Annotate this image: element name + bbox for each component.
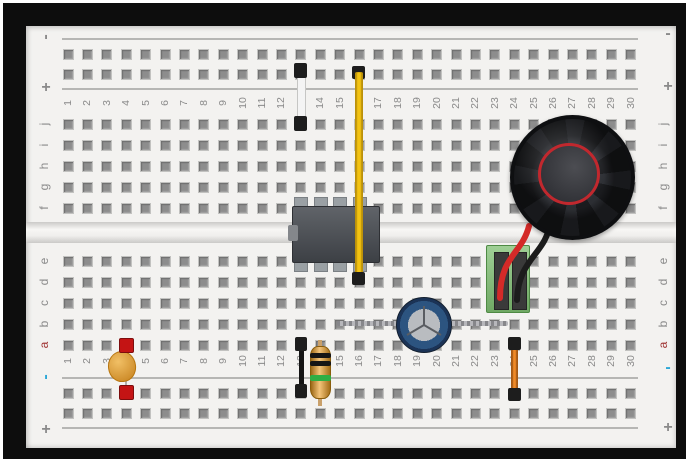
- capacitor-lead-right[interactable]: [449, 321, 508, 326]
- hole: [606, 277, 617, 288]
- hole: [276, 277, 287, 288]
- ic-chip-8pin-dip[interactable]: [292, 206, 380, 263]
- hole: [82, 119, 93, 130]
- hole: [392, 119, 403, 130]
- hole: [373, 119, 384, 130]
- hole: [63, 340, 74, 351]
- hole: [548, 277, 559, 288]
- column-number-bottom: 10: [237, 355, 249, 367]
- hole: [451, 203, 462, 214]
- black-jumper-bottom-end[interactable]: [295, 384, 307, 398]
- hole: [276, 161, 287, 172]
- hole: [354, 340, 365, 351]
- hole: [276, 340, 287, 351]
- column-number-top: 30: [625, 97, 637, 109]
- hole: [489, 408, 500, 419]
- row-letter-right: g: [656, 184, 670, 191]
- hole: [334, 277, 345, 288]
- hole: [295, 408, 306, 419]
- hole: [198, 298, 209, 309]
- hole: [160, 319, 171, 330]
- hole: [334, 298, 345, 309]
- hole: [257, 161, 268, 172]
- hole: [218, 277, 229, 288]
- hole: [567, 298, 578, 309]
- hole: [470, 182, 481, 193]
- column-number-bottom: 9: [217, 358, 229, 364]
- hole: [237, 298, 248, 309]
- hole: [489, 182, 500, 193]
- row-letter-left: h: [37, 163, 51, 170]
- hole: [101, 49, 112, 60]
- hole: [334, 161, 345, 172]
- hole: [82, 182, 93, 193]
- hole: [101, 182, 112, 193]
- hole: [160, 298, 171, 309]
- electrolytic-capacitor[interactable]: [396, 297, 452, 353]
- hole: [179, 203, 190, 214]
- hole: [101, 408, 112, 419]
- hole: [606, 408, 617, 419]
- hole: [160, 140, 171, 151]
- hole: [606, 256, 617, 267]
- column-number-bottom: 16: [353, 355, 365, 367]
- column-number-bottom: 26: [547, 355, 559, 367]
- hole: [431, 277, 442, 288]
- hole: [276, 203, 287, 214]
- hole: [198, 119, 209, 130]
- hole: [179, 49, 190, 60]
- hole: [431, 256, 442, 267]
- hole: [412, 140, 423, 151]
- bottom-rail-line-minus: [62, 377, 638, 379]
- hole: [606, 49, 617, 60]
- column-number-bottom: 12: [275, 355, 287, 367]
- hole: [121, 140, 132, 151]
- row-letter-left: b: [37, 321, 51, 328]
- hole: [586, 340, 597, 351]
- hole: [237, 319, 248, 330]
- hole: [82, 388, 93, 399]
- column-number-bottom: 15: [334, 355, 346, 367]
- hole: [101, 319, 112, 330]
- hole: [567, 408, 578, 419]
- hole: [470, 161, 481, 172]
- column-number-top: 28: [586, 97, 598, 109]
- hole: [160, 49, 171, 60]
- hole: [567, 69, 578, 80]
- hole: [257, 388, 268, 399]
- hole: [63, 203, 74, 214]
- hole: [198, 161, 209, 172]
- hole: [121, 119, 132, 130]
- hole: [160, 340, 171, 351]
- hole: [121, 319, 132, 330]
- breadboard: 1122334455667788991010111112121313141415…: [26, 26, 676, 448]
- hole: [392, 203, 403, 214]
- hole: [179, 319, 190, 330]
- hole: [257, 408, 268, 419]
- hole: [567, 49, 578, 60]
- hole: [121, 161, 132, 172]
- hole: [451, 161, 462, 172]
- hole: [412, 388, 423, 399]
- hole: [140, 203, 151, 214]
- hole: [101, 277, 112, 288]
- hole: [121, 182, 132, 193]
- hole: [140, 319, 151, 330]
- hole: [82, 340, 93, 351]
- hole: [451, 408, 462, 419]
- hole: [140, 408, 151, 419]
- hole: [625, 49, 636, 60]
- hole: [295, 161, 306, 172]
- yellow-wire-bottom-end[interactable]: [352, 272, 365, 285]
- hole: [412, 69, 423, 80]
- row-letter-left: g: [37, 184, 51, 191]
- column-number-top: 7: [178, 100, 190, 106]
- hole: [237, 340, 248, 351]
- hole: [392, 49, 403, 60]
- column-number-bottom: 21: [450, 355, 462, 367]
- hole: [625, 277, 636, 288]
- white-jumper-bottom-end[interactable]: [294, 116, 307, 131]
- hole: [586, 256, 597, 267]
- hole: [140, 140, 151, 151]
- hole: [160, 256, 171, 267]
- hole: [373, 298, 384, 309]
- capacitor-lead-left[interactable]: [337, 321, 397, 326]
- hole: [548, 256, 559, 267]
- hole: [412, 408, 423, 419]
- hole: [586, 408, 597, 419]
- hole: [625, 298, 636, 309]
- hole: [140, 298, 151, 309]
- hole: [237, 49, 248, 60]
- hole: [140, 277, 151, 288]
- hole: [625, 256, 636, 267]
- hole: [567, 340, 578, 351]
- hole: [354, 298, 365, 309]
- hole: [63, 49, 74, 60]
- hole: [334, 140, 345, 151]
- hole: [121, 298, 132, 309]
- hole: [276, 69, 287, 80]
- hole: [179, 69, 190, 80]
- hole: [625, 69, 636, 80]
- hole: [489, 69, 500, 80]
- hole: [121, 277, 132, 288]
- hole: [586, 277, 597, 288]
- column-number-bottom: 5: [140, 358, 152, 364]
- hole: [140, 388, 151, 399]
- hole: [63, 408, 74, 419]
- hole: [101, 256, 112, 267]
- hole: [198, 340, 209, 351]
- hole: [63, 277, 74, 288]
- hole: [140, 340, 151, 351]
- column-number-top: 19: [411, 97, 423, 109]
- speaker-cone: [538, 143, 600, 205]
- column-number-bottom: 18: [392, 355, 404, 367]
- column-number-bottom: 25: [528, 355, 540, 367]
- hole: [237, 277, 248, 288]
- hole: [276, 319, 287, 330]
- hole: [295, 182, 306, 193]
- hole: [431, 161, 442, 172]
- row-letter-left: e: [37, 258, 51, 265]
- rail-marker-bottom-right-plus: +: [663, 419, 672, 437]
- hole: [198, 203, 209, 214]
- orange-jumper-top-end[interactable]: [508, 337, 521, 350]
- row-letter-left: a: [37, 342, 51, 349]
- column-number-bottom: 29: [605, 355, 617, 367]
- hole: [121, 203, 132, 214]
- hole: [295, 319, 306, 330]
- hole: [548, 298, 559, 309]
- column-number-top: 20: [431, 97, 443, 109]
- hole: [315, 69, 326, 80]
- hole: [586, 319, 597, 330]
- hole: [257, 203, 268, 214]
- hole: [160, 388, 171, 399]
- orange-jumper-bottom-end[interactable]: [508, 388, 521, 401]
- hole: [160, 203, 171, 214]
- column-number-top: 3: [101, 100, 113, 106]
- hole: [315, 119, 326, 130]
- hole: [431, 203, 442, 214]
- hole: [315, 408, 326, 419]
- column-number-bottom: 2: [81, 358, 93, 364]
- hole: [509, 319, 520, 330]
- hole: [470, 49, 481, 60]
- hole: [218, 256, 229, 267]
- rail-marker-bottom-left-minus: -: [37, 374, 55, 379]
- hole: [218, 119, 229, 130]
- hole: [431, 140, 442, 151]
- hole: [334, 408, 345, 419]
- speaker[interactable]: [510, 115, 635, 240]
- hole: [354, 49, 365, 60]
- hole: [451, 69, 462, 80]
- hole: [315, 319, 326, 330]
- hole: [82, 408, 93, 419]
- hole: [606, 319, 617, 330]
- hole: [373, 49, 384, 60]
- hole: [392, 182, 403, 193]
- ceramic-cap-pin-bottom[interactable]: [119, 385, 134, 400]
- white-jumper-top-end[interactable]: [294, 63, 307, 78]
- hole: [451, 298, 462, 309]
- hole: [451, 119, 462, 130]
- hole: [470, 119, 481, 130]
- hole: [218, 340, 229, 351]
- column-number-top: 21: [450, 97, 462, 109]
- hole: [82, 277, 93, 288]
- row-letter-right: i: [656, 144, 670, 147]
- row-letter-right: b: [656, 321, 670, 328]
- hole: [63, 119, 74, 130]
- column-number-top: 2: [81, 100, 93, 106]
- hole: [198, 277, 209, 288]
- hole: [315, 140, 326, 151]
- column-number-top: 26: [547, 97, 559, 109]
- hole: [548, 49, 559, 60]
- hole: [392, 69, 403, 80]
- hole: [218, 140, 229, 151]
- hole: [373, 408, 384, 419]
- row-letter-right: e: [656, 258, 670, 265]
- column-number-bottom: 1: [62, 358, 74, 364]
- hole: [412, 49, 423, 60]
- row-letter-right: h: [656, 163, 670, 170]
- hole: [315, 277, 326, 288]
- hole: [101, 140, 112, 151]
- resistor-band-2: [310, 361, 331, 366]
- hole: [160, 161, 171, 172]
- hole: [257, 277, 268, 288]
- hole: [373, 140, 384, 151]
- hole: [257, 319, 268, 330]
- hole: [354, 388, 365, 399]
- hole: [63, 69, 74, 80]
- hole: [63, 140, 74, 151]
- hole: [63, 388, 74, 399]
- column-number-top: 15: [334, 97, 346, 109]
- hole: [179, 388, 190, 399]
- hole: [431, 182, 442, 193]
- hole: [373, 161, 384, 172]
- hole: [295, 298, 306, 309]
- hole: [392, 408, 403, 419]
- hole: [63, 182, 74, 193]
- column-number-top: 17: [372, 97, 384, 109]
- row-letter-left: d: [37, 279, 51, 286]
- hole: [451, 182, 462, 193]
- hole: [625, 388, 636, 399]
- hole: [257, 340, 268, 351]
- terminal-slot-right[interactable]: [512, 252, 527, 310]
- resistor-band-3: [310, 375, 331, 381]
- hole: [63, 319, 74, 330]
- black-jumper-top-end[interactable]: [295, 337, 307, 351]
- hole: [237, 182, 248, 193]
- column-number-top: 18: [392, 97, 404, 109]
- column-number-top: 11: [256, 98, 268, 109]
- column-number-top: 12: [275, 97, 287, 109]
- hole: [179, 161, 190, 172]
- hole: [334, 69, 345, 80]
- column-number-bottom: 7: [178, 358, 190, 364]
- hole: [606, 340, 617, 351]
- column-number-bottom: 8: [198, 358, 210, 364]
- hole: [373, 182, 384, 193]
- hole: [451, 388, 462, 399]
- hole: [412, 277, 423, 288]
- hole: [392, 140, 403, 151]
- rail-marker-top-left-plus: +: [41, 79, 50, 97]
- hole: [528, 340, 539, 351]
- hole: [101, 388, 112, 399]
- hole: [470, 408, 481, 419]
- column-number-bottom: 28: [586, 355, 598, 367]
- hole: [198, 408, 209, 419]
- hole: [140, 119, 151, 130]
- hole: [354, 408, 365, 419]
- hole: [315, 49, 326, 60]
- hole: [179, 140, 190, 151]
- hole: [101, 161, 112, 172]
- column-number-top: 4: [120, 100, 132, 106]
- hole: [548, 69, 559, 80]
- hole: [625, 408, 636, 419]
- hole: [237, 408, 248, 419]
- column-number-top: 10: [237, 97, 249, 109]
- hole: [198, 319, 209, 330]
- column-number-top: 25: [528, 97, 540, 109]
- hole: [451, 49, 462, 60]
- column-number-bottom: 20: [431, 355, 443, 367]
- yellow-jumper-wire[interactable]: [355, 72, 363, 278]
- hole: [121, 69, 132, 80]
- hole: [257, 140, 268, 151]
- rail-marker-top-left-minus: -: [37, 34, 55, 39]
- hole: [606, 388, 617, 399]
- hole: [160, 69, 171, 80]
- hole: [237, 119, 248, 130]
- hole: [198, 49, 209, 60]
- screenshot-stage: 1122334455667788991010111112121313141415…: [0, 0, 689, 462]
- hole: [470, 140, 481, 151]
- hole: [237, 388, 248, 399]
- hole: [489, 140, 500, 151]
- ceramic-cap-pin-top[interactable]: [119, 338, 134, 353]
- hole: [295, 49, 306, 60]
- orange-jumper-wire[interactable]: [511, 343, 518, 394]
- hole: [82, 256, 93, 267]
- hole: [392, 161, 403, 172]
- row-letter-left: f: [37, 206, 51, 209]
- row-letter-right: c: [656, 300, 670, 306]
- hole: [315, 298, 326, 309]
- hole: [121, 408, 132, 419]
- terminal-slot-left[interactable]: [494, 252, 509, 310]
- hole: [63, 161, 74, 172]
- hole: [489, 203, 500, 214]
- hole: [63, 256, 74, 267]
- hole: [334, 119, 345, 130]
- row-letter-left: i: [37, 144, 51, 147]
- hole: [198, 182, 209, 193]
- hole: [509, 69, 520, 80]
- hole: [586, 69, 597, 80]
- hole: [198, 388, 209, 399]
- hole: [218, 69, 229, 80]
- hole: [218, 319, 229, 330]
- hole: [257, 298, 268, 309]
- hole: [140, 161, 151, 172]
- top-rail-line-plus: [62, 88, 638, 90]
- column-number-top: 5: [140, 100, 152, 106]
- hole: [257, 182, 268, 193]
- hole: [179, 340, 190, 351]
- hole: [528, 319, 539, 330]
- hole: [237, 69, 248, 80]
- hole: [140, 49, 151, 60]
- hole: [179, 277, 190, 288]
- column-number-top: 24: [508, 97, 520, 109]
- hole: [528, 388, 539, 399]
